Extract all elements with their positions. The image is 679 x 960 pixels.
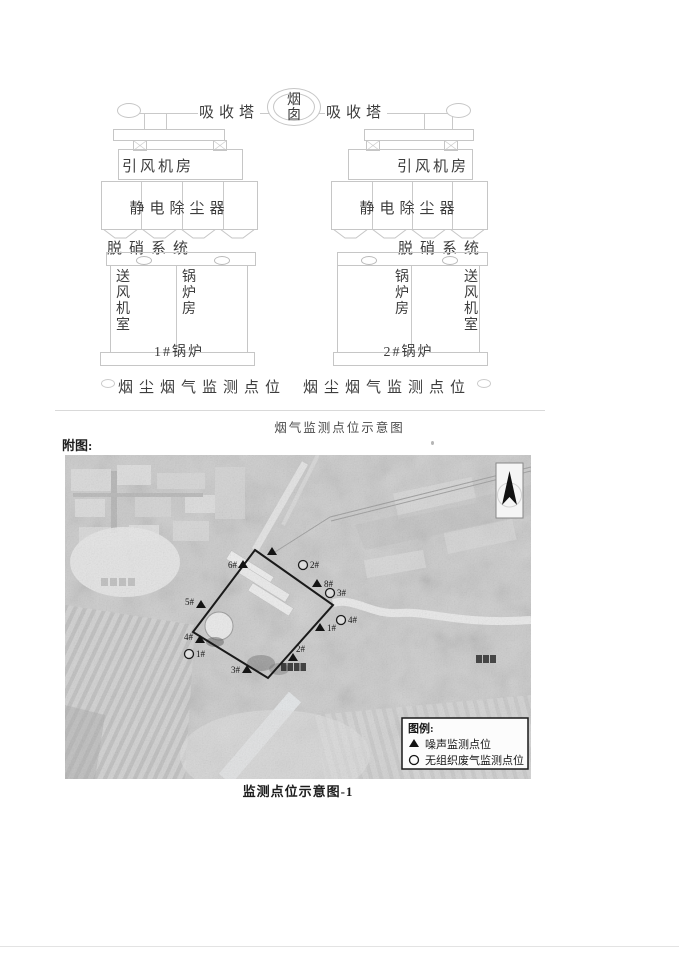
absorber-label-left: 吸收塔 [198, 101, 260, 122]
esp-left: 静电除尘器 [101, 181, 258, 230]
map-legend: 图例: 噪声监测点位 无组织废气监测点位 [402, 718, 528, 769]
monitor-port-icon [214, 256, 230, 265]
noise-point-5-label: 5# [185, 597, 195, 607]
gas-point-1-icon [185, 650, 194, 659]
gas-point-1-label: 1# [196, 649, 206, 659]
separator-line [55, 410, 545, 411]
legend-noise-label: 噪声监测点位 [425, 737, 491, 751]
artifact-dot [431, 441, 434, 445]
scr-duct-right [337, 252, 488, 266]
gas-point-2-icon [299, 561, 308, 570]
duct-stem [166, 114, 167, 129]
noise-point-2-label: 2# [296, 644, 306, 654]
legend-gas-icon [410, 756, 419, 765]
duct-header-left [113, 129, 225, 141]
bottom-rule [0, 946, 679, 947]
esp-label-left: 静电除尘器 [102, 197, 257, 218]
gas-point-2-label: 2# [310, 560, 320, 570]
monitoring-map: 6# 8# 1# 5# 4# 3# 2# 2# 3# 4# 1# [65, 455, 531, 779]
legend-gas-label: 无组织废气监测点位 [425, 753, 524, 767]
dust-gas-monitor-label-left: 烟尘烟气监测点位 [118, 376, 286, 397]
noise-point-6-label: 6# [228, 560, 238, 570]
place-label-dark-right [476, 655, 496, 663]
chimney-label: 烟囱 [287, 93, 303, 123]
duct-stem [144, 114, 145, 129]
supply-fan-room-label-right: 送风机室 [464, 270, 482, 334]
monitor-port-icon [361, 256, 377, 265]
gas-point-3-icon [326, 589, 335, 598]
esp-label-right: 静电除尘器 [332, 197, 487, 218]
id-fan-room-left: 引风机房 [118, 149, 243, 180]
attachment-label: 附图: [62, 435, 92, 454]
id-fan-room-right: 引风机房 [348, 149, 473, 180]
boiler-house-label-right: 锅炉房 [395, 270, 413, 318]
dust-gas-monitor-label-right: 烟尘烟气监测点位 [303, 376, 471, 397]
noise-point-8-label: 8# [324, 579, 334, 589]
noise-point-3-label: 3# [231, 665, 241, 675]
esp-right: 静电除尘器 [331, 181, 488, 230]
boiler-divider [176, 266, 177, 352]
absorber-label-right: 吸收塔 [325, 101, 387, 122]
monitor-port-icon [442, 256, 458, 265]
boiler-house-label-left: 锅炉房 [182, 270, 200, 318]
diagram-caption: 烟气监测点位示意图 [0, 417, 679, 436]
boiler-2-label: 2#锅炉 [337, 341, 480, 361]
map-caption: 监测点位示意图-1 [65, 781, 531, 800]
id-fan-room-label-right: 引风机房 [397, 155, 469, 176]
legend-title: 图例: [408, 721, 434, 735]
monitor-port-icon [136, 256, 152, 265]
gas-point-3-label: 3# [337, 588, 347, 598]
gas-point-4-icon [337, 616, 346, 625]
absorber-ellipse-left [117, 103, 141, 118]
noise-point-1-label: 1# [327, 623, 337, 633]
absorber-ellipse-right [446, 103, 471, 118]
north-arrow-icon [496, 463, 523, 518]
monitor-point-icon [101, 379, 115, 388]
flue-gas-diagram: 烟囱 吸收塔 吸收塔 引风机房 引风机房 静电除尘器 静电除尘 [0, 0, 679, 410]
noise-point-4-label: 4# [184, 632, 194, 642]
id-fan-room-label-left: 引风机房 [122, 155, 194, 176]
scr-duct-left [106, 252, 256, 266]
document-page: 烟囱 吸收塔 吸收塔 引风机房 引风机房 静电除尘器 静电除尘 [0, 0, 679, 960]
duct-stem [424, 114, 425, 129]
supply-fan-room-label-left: 送风机室 [116, 270, 134, 334]
gas-point-4-label: 4# [348, 615, 358, 625]
boiler-1-label: 1#锅炉 [110, 341, 248, 361]
monitor-point-icon [477, 379, 491, 388]
